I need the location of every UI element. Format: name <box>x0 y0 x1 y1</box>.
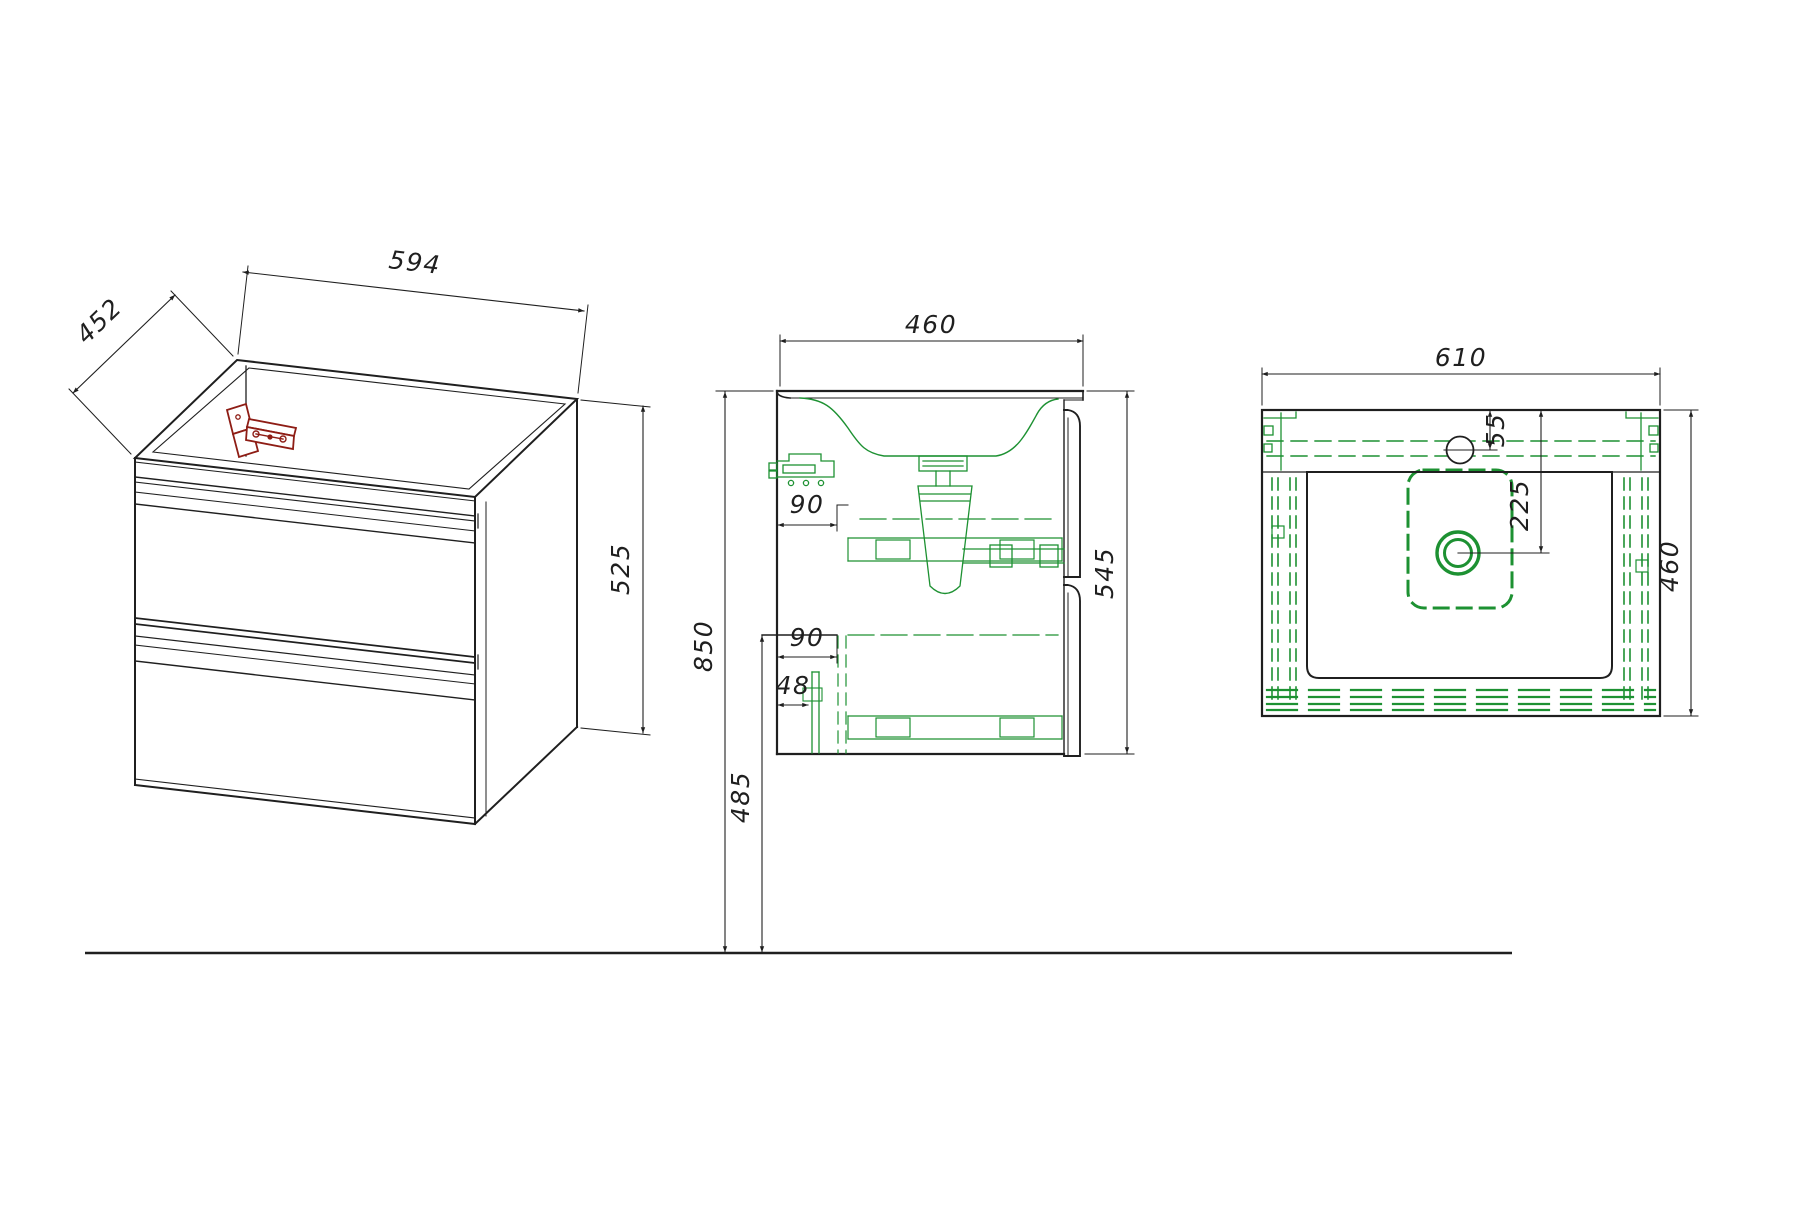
dim-label-pipe-offset: 48 <box>776 671 811 700</box>
wall-rail-bracket <box>769 454 834 486</box>
iso-front-bottom-inner <box>135 779 475 818</box>
section-view: 460 545 850 485 90 90 <box>689 310 1134 952</box>
dim-label-top-width: 610 <box>1435 343 1487 372</box>
dim-label-section-depth: 460 <box>905 310 957 339</box>
top-view: 610 460 55 225 <box>1262 343 1698 716</box>
top-dim-depth: 460 <box>1655 410 1698 716</box>
iso-dim-width: 594 <box>238 245 588 393</box>
isometric-view: 594 452 525 <box>69 245 650 824</box>
section-dim-floor-to-top: 850 <box>689 391 773 952</box>
iso-front-bottom-edge <box>135 785 475 824</box>
dim-label-drain-offset: 225 <box>1505 479 1534 531</box>
dim-label-iso-depth: 452 <box>70 292 128 349</box>
top-hidden-side-slides <box>1272 478 1648 702</box>
dim-label-faucet-offset: 55 <box>1481 413 1510 448</box>
top-hidden-bottom-band <box>1267 690 1655 710</box>
wall-mount-bracket-icon <box>227 404 296 457</box>
top-dim-width: 610 <box>1262 343 1660 405</box>
drawer-slide-lower <box>848 716 1062 739</box>
drawing-canvas: 594 452 525 <box>0 0 1800 1232</box>
section-dim-rail-lower: 90 <box>778 623 836 657</box>
section-dim-depth: 460 <box>780 310 1083 386</box>
section-dim-rail-upper: 90 <box>778 490 836 525</box>
drain-siphon <box>918 456 1064 594</box>
basin-underside <box>800 398 1058 456</box>
section-dim-height: 545 <box>1085 391 1134 754</box>
section-dim-floor-to-drain: 485 <box>726 636 762 952</box>
iso-dim-depth: 452 <box>69 291 233 454</box>
section-drawer-fronts <box>1064 410 1080 756</box>
section-dim-pipe-offset: 48 <box>776 671 811 705</box>
dim-label-floor-to-top: 850 <box>689 620 718 672</box>
dim-label-rail-upper: 90 <box>790 490 825 519</box>
technical-drawing-page: 594 452 525 <box>0 0 1800 1232</box>
dim-label-iso-height: 525 <box>606 543 635 595</box>
iso-side-bottom-edge <box>475 727 577 824</box>
dim-label-iso-width: 594 <box>387 245 442 280</box>
dim-label-section-height: 545 <box>1090 547 1119 599</box>
iso-dim-height: 525 <box>581 400 650 735</box>
top-dim-faucet: 55 <box>1481 411 1510 449</box>
dim-label-rail-lower: 90 <box>790 623 825 652</box>
dim-label-top-depth: 460 <box>1655 540 1684 592</box>
dim-label-floor-to-drain: 485 <box>726 771 755 823</box>
iso-drawer-front-lines <box>135 462 478 700</box>
